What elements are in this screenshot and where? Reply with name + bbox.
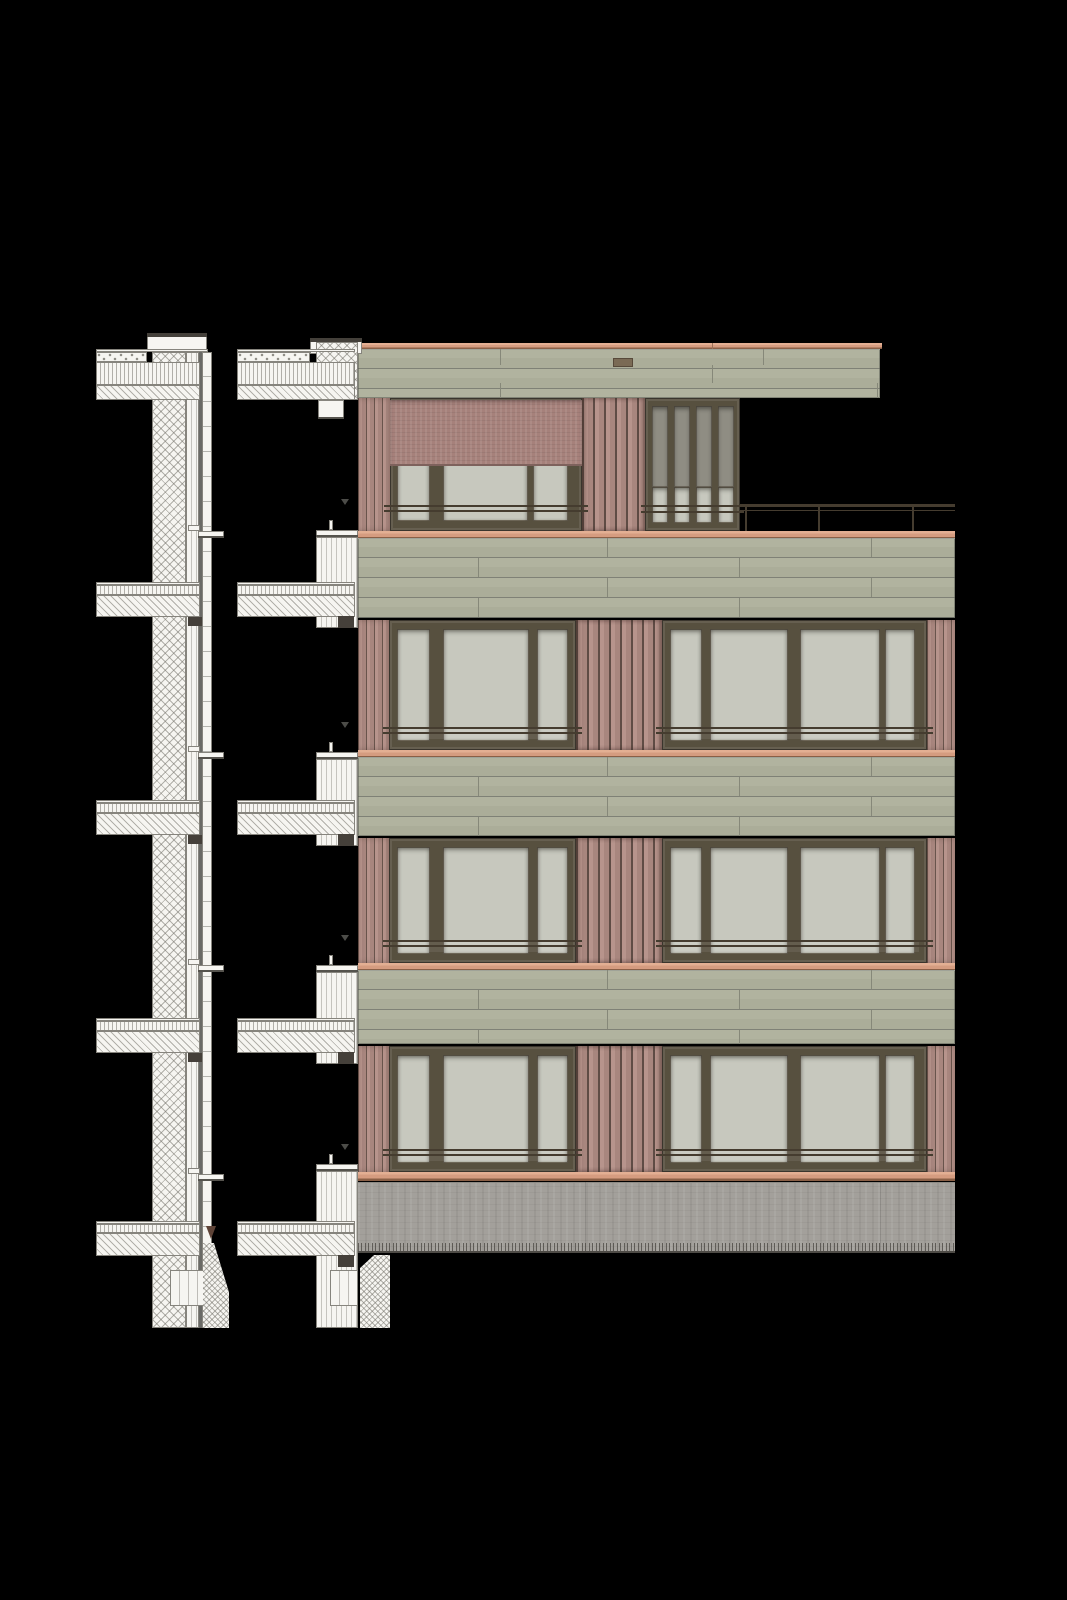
floor-insulation-layer: [237, 1224, 355, 1233]
penthouse-awning: [390, 400, 582, 466]
window-sill: [198, 1174, 224, 1181]
floor-slab: [96, 813, 200, 835]
band-panel-joint: [739, 598, 740, 617]
sill-tick: [329, 955, 333, 965]
floor-slab: [237, 1031, 355, 1053]
french-balcony-rail: [656, 940, 933, 942]
floor-insulation-layer: [237, 1021, 355, 1031]
window-head: [188, 835, 202, 844]
band-panel-joint: [739, 777, 740, 796]
terrace-railing-top: [740, 504, 955, 507]
window-pane: [443, 629, 529, 741]
window-pane: [670, 847, 702, 954]
window-pane: [443, 847, 529, 954]
french-balcony-rail: [656, 1154, 933, 1156]
door-glass-upper: [674, 406, 690, 487]
window-pane: [710, 847, 788, 954]
ground-slab: [96, 1233, 200, 1256]
glass-lower-light: [397, 1151, 568, 1161]
band-panel-joint: [607, 1010, 608, 1029]
parapet-bracket: [318, 400, 344, 419]
fascia-panel-joint: [877, 383, 878, 398]
window-sill: [316, 965, 358, 972]
wood-cladding-pier: [358, 620, 389, 750]
window-pane: [443, 1055, 529, 1163]
sill-tick: [329, 742, 333, 752]
floor-insulation-layer: [237, 585, 355, 595]
wood-cladding-pier: [582, 398, 645, 531]
french-balcony-rail: [656, 1149, 933, 1151]
roof-gravel-layer: [96, 352, 147, 362]
band-panel-joint: [607, 757, 608, 776]
band-panel-joint: [739, 558, 740, 577]
level-marker-icon: [341, 935, 349, 941]
door-glass-upper: [652, 406, 668, 487]
sill-tick: [329, 520, 333, 530]
window-head: [188, 1053, 202, 1062]
french-balcony-rail: [656, 727, 933, 729]
band-panel-joint: [607, 797, 608, 816]
band-panel-joint: [871, 797, 872, 816]
window-pane: [397, 1055, 430, 1163]
band-panel-joint: [607, 578, 608, 597]
band-panel-joint: [478, 990, 479, 1009]
floor-insulation-layer: [96, 585, 200, 595]
window-pane: [537, 629, 568, 741]
roof-insulation-layer: [237, 362, 355, 385]
french-balcony-rail: [656, 732, 933, 734]
window-pane: [885, 629, 915, 741]
band-panel-joint: [739, 990, 740, 1009]
french-balcony-rail: [383, 1149, 582, 1151]
band-panel-joint: [478, 558, 479, 577]
soil-hatch: [203, 1243, 229, 1328]
soil-hatch: [360, 1255, 390, 1328]
door-glass-upper: [718, 406, 734, 487]
terrace-railing-post: [745, 504, 747, 531]
french-balcony-rail: [384, 505, 588, 507]
window-head: [338, 1255, 354, 1267]
window-sill: [198, 965, 224, 972]
band-panel-joint: [607, 538, 608, 557]
band-panel-joint: [871, 970, 872, 989]
floor-slab: [237, 813, 355, 835]
terrace-railing-post: [912, 504, 914, 531]
band-panel-joint: [739, 817, 740, 836]
plinth-bottom-line: [358, 1251, 955, 1253]
floor-insulation-layer: [96, 1224, 200, 1233]
fascia-panel-joint: [500, 383, 501, 398]
french-balcony-rail: [384, 510, 588, 512]
window-sill: [316, 752, 358, 759]
band-panel-joint: [871, 578, 872, 597]
band-panel-joint: [478, 777, 479, 796]
door-glass-upper: [696, 406, 712, 487]
floor-slab: [96, 595, 200, 617]
section1-insulation: [152, 352, 186, 1328]
glass-lower-light: [670, 729, 919, 739]
window-head: [188, 617, 202, 626]
french-balcony-rail: [641, 505, 744, 507]
fascia-panel-joint: [500, 349, 501, 365]
window-pane: [670, 629, 702, 741]
level-marker-icon: [341, 722, 349, 728]
band-panel-joint: [871, 757, 872, 776]
roof-fascia: [358, 349, 880, 398]
copper-sill: [358, 1172, 955, 1181]
floor-insulation-layer: [96, 1021, 200, 1031]
band-panel-joint: [478, 598, 479, 617]
window-pane: [800, 847, 880, 954]
band-panel-joint: [871, 538, 872, 557]
green-spandrel-band: [358, 757, 955, 836]
terrace-railing-post: [818, 504, 820, 531]
window-pane: [537, 847, 568, 954]
band-panel-joint: [607, 970, 608, 989]
glass-lower-light: [670, 1151, 919, 1161]
window-sill: [316, 1164, 358, 1171]
wood-cladding-pier: [576, 838, 662, 963]
window-pane: [800, 1055, 880, 1163]
window-pane: [885, 847, 915, 954]
wood-cladding-pier: [576, 620, 662, 750]
window-head: [338, 616, 354, 628]
roof-slab: [96, 385, 200, 400]
footing: [330, 1270, 358, 1306]
window-sill: [198, 531, 224, 538]
level-marker-icon: [341, 499, 349, 505]
french-balcony-rail: [383, 732, 582, 734]
band-panel-joint: [478, 1030, 479, 1044]
glass-lower-light: [397, 942, 568, 952]
roof-gravel-layer: [237, 352, 310, 362]
window-sill: [316, 530, 358, 537]
french-balcony-rail: [656, 945, 933, 947]
green-spandrel-band: [358, 538, 955, 618]
level-marker-icon: [341, 1144, 349, 1150]
window-head: [338, 1052, 354, 1064]
band-panel-joint: [739, 1030, 740, 1044]
ground-slab: [237, 1233, 355, 1256]
window-pane: [397, 629, 430, 741]
floor-slab: [96, 1031, 200, 1053]
window-pane: [885, 1055, 915, 1163]
roof-vent: [613, 358, 633, 367]
wood-cladding-pier: [927, 620, 955, 750]
glass-lower-light: [397, 729, 568, 739]
french-balcony-rail: [641, 511, 744, 513]
window-pane: [710, 629, 788, 741]
floor-insulation-layer: [96, 803, 200, 813]
grade-arrow-icon: [206, 1226, 216, 1239]
floor-slab: [237, 595, 355, 617]
section1-outer-strip: [202, 352, 212, 1328]
french-balcony-rail: [383, 940, 582, 942]
roof-slab: [237, 385, 355, 400]
band-panel-joint: [478, 817, 479, 836]
fascia-panel-joint: [763, 349, 764, 365]
window-sill: [198, 752, 224, 759]
terrace-railing-mid: [740, 510, 955, 511]
sill-tick: [329, 1154, 333, 1164]
wood-cladding-pier: [576, 1046, 662, 1172]
window-head: [338, 834, 354, 846]
drawing-canvas: [0, 0, 1067, 1600]
fascia-panel-joint: [712, 365, 713, 383]
floor-insulation-layer: [237, 803, 355, 813]
band-panel-joint: [871, 1010, 872, 1029]
french-balcony-rail: [383, 727, 582, 729]
roof-insulation-layer: [96, 362, 200, 385]
french-balcony-rail: [383, 945, 582, 947]
glass-lower-light: [670, 942, 919, 952]
window-pane: [397, 847, 430, 954]
green-spandrel-band: [358, 970, 955, 1044]
window-pane: [670, 1055, 702, 1163]
window-pane: [800, 629, 880, 741]
window-pane: [537, 1055, 568, 1163]
french-balcony-rail: [383, 1154, 582, 1156]
window-pane: [710, 1055, 788, 1163]
